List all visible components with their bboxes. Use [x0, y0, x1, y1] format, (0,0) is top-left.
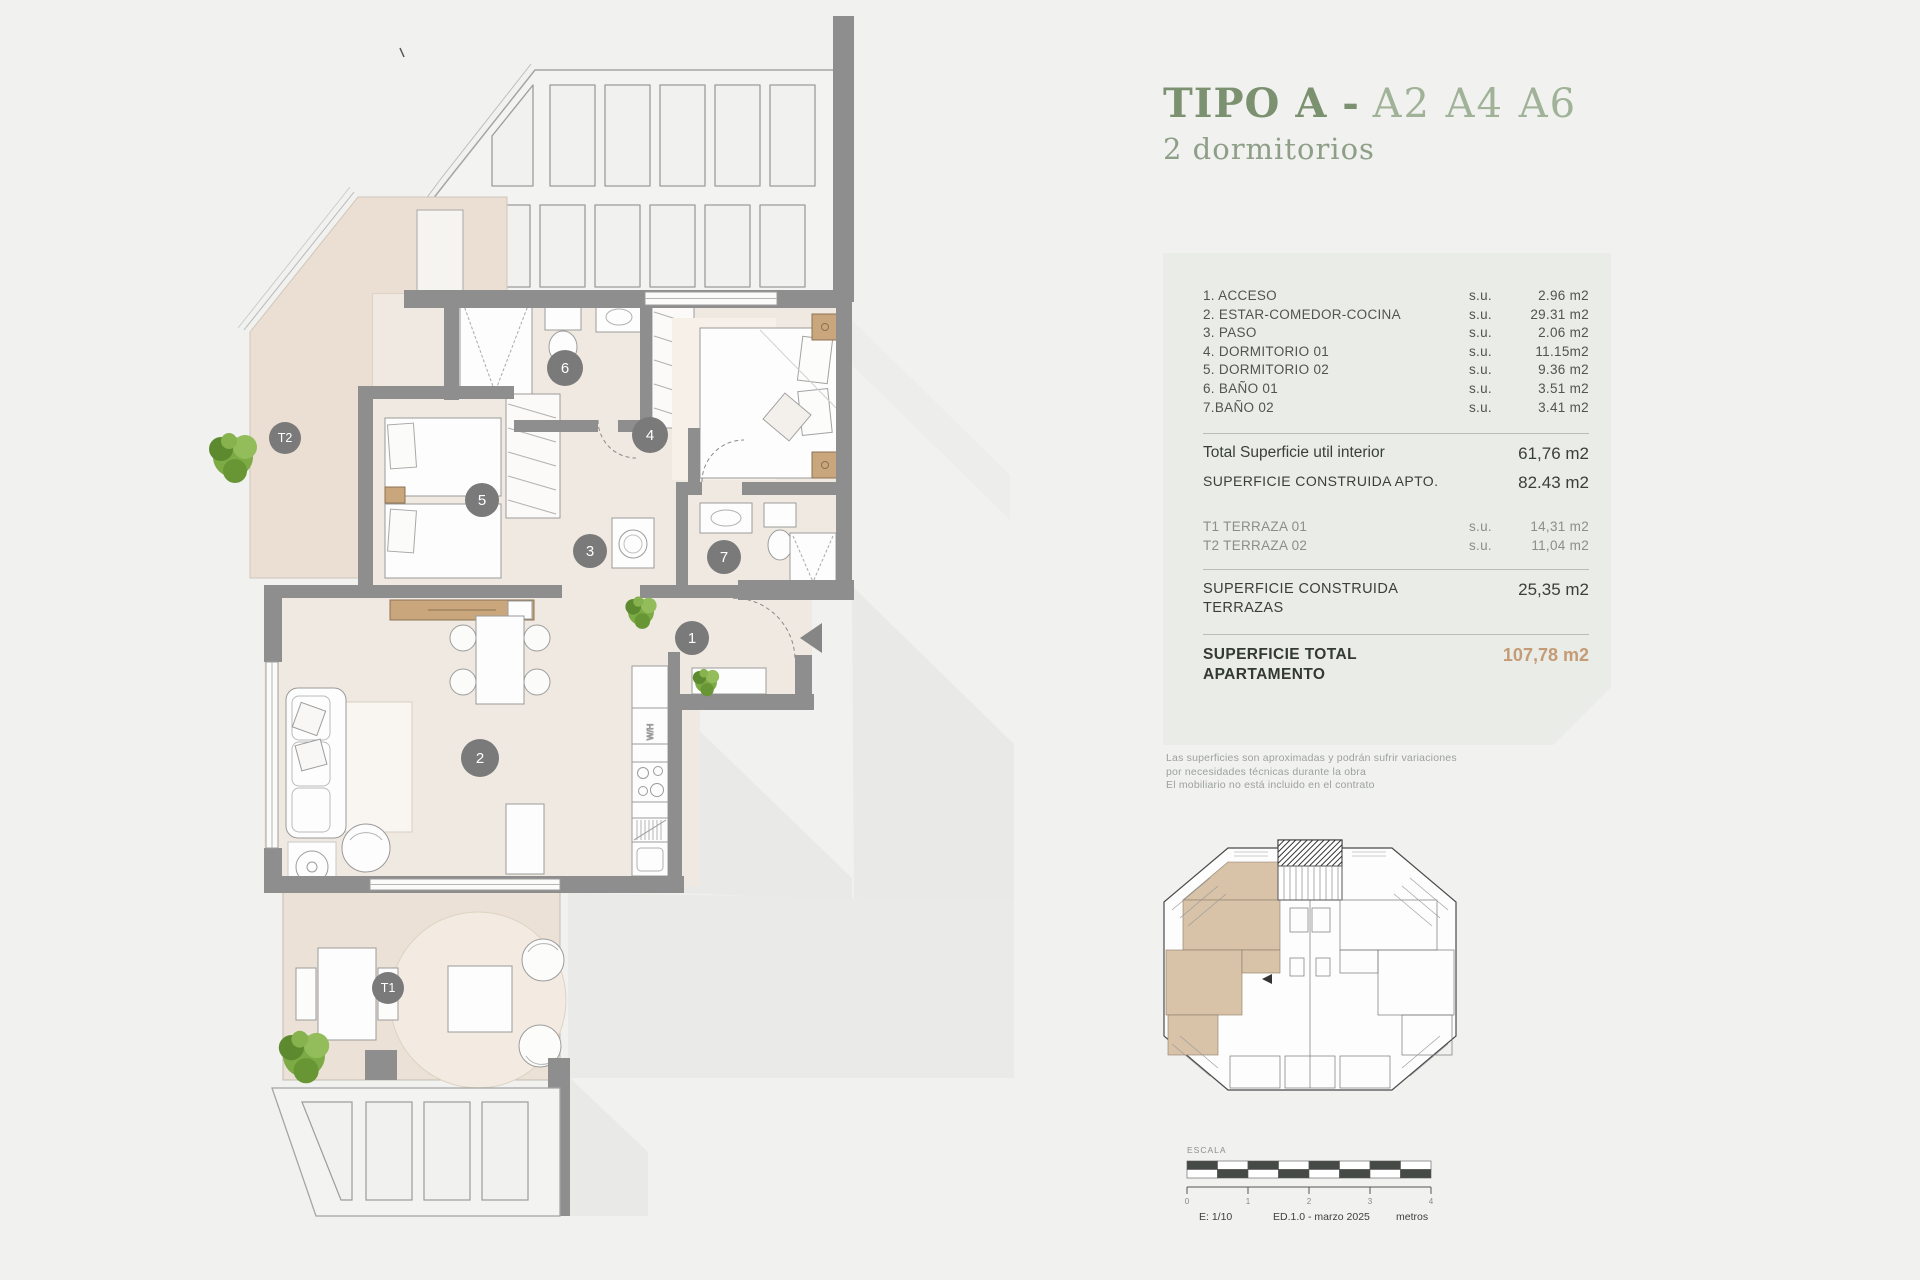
- svg-text:4: 4: [1429, 1197, 1434, 1206]
- svg-text:T2: T2: [278, 431, 293, 445]
- coffee-table: [448, 966, 512, 1032]
- kitchen-appliance-label: W/H: [645, 724, 655, 741]
- terrace-row: T1 TERRAZA 01s.u.14,31 m2: [1203, 517, 1589, 536]
- svg-text:T1: T1: [381, 981, 396, 995]
- svg-text:7: 7: [720, 549, 728, 566]
- room-list: 1. ACCESOs.u.2.96 m2 2. ESTAR-COMEDOR-CO…: [1203, 287, 1589, 417]
- scale-title: ESCALA: [1187, 1145, 1227, 1155]
- title-type: TIPO A -: [1163, 80, 1360, 127]
- page-title: TIPO A - A2 A4 A6: [1163, 82, 1683, 126]
- scale-edition: ED.1.0 - marzo 2025: [1273, 1211, 1370, 1223]
- room-marker-5: 5: [465, 483, 499, 517]
- construida-terrazas-row: SUPERFICIE CONSTRUIDA TERRAZAS 25,35 m2: [1203, 580, 1589, 618]
- room-marker-1: 1: [675, 621, 709, 655]
- svg-text:0: 0: [1185, 1197, 1190, 1206]
- lounge-chair: [522, 939, 564, 981]
- elevator-core: [1278, 840, 1342, 866]
- nightstand: [812, 452, 838, 478]
- room-marker-2: 2: [461, 739, 499, 777]
- svg-text:2: 2: [1307, 1197, 1312, 1206]
- total-apartamento-row: SUPERFICIE TOTAL APARTAMENTO 107,78 m2: [1203, 645, 1589, 685]
- total-value: 107,78 m2: [1479, 645, 1589, 666]
- surface-panel: 1. ACCESOs.u.2.96 m2 2. ESTAR-COMEDOR-CO…: [1163, 253, 1611, 745]
- room-row: 4. DORMITORIO 01s.u.11.15m2: [1203, 343, 1589, 362]
- room-marker-6: 6: [547, 350, 583, 386]
- title-units: A2 A4 A6: [1373, 81, 1577, 127]
- scale-units: metros: [1396, 1211, 1428, 1223]
- nightstand: [812, 314, 838, 340]
- armchair: [342, 824, 390, 872]
- svg-text:5: 5: [478, 492, 486, 509]
- construida-apto-row: SUPERFICIE CONSTRUIDA APTO. 82.43 m2: [1203, 473, 1589, 493]
- terrace-list: T1 TERRAZA 01s.u.14,31 m2 T2 TERRAZA 02s…: [1203, 517, 1589, 555]
- scale-ratio: E: 1/10: [1199, 1211, 1232, 1223]
- svg-text:3: 3: [1368, 1197, 1373, 1206]
- room-row: 2. ESTAR-COMEDOR-COCINAs.u.29.31 m2: [1203, 306, 1589, 325]
- title-block: TIPO A - A2 A4 A6 2 dormitorios: [1163, 82, 1683, 166]
- room-marker-t1: T1: [372, 972, 404, 1004]
- tick-mark: [400, 48, 404, 57]
- kitchen: W/H: [632, 666, 668, 876]
- floor-plan: W/H: [0, 0, 1100, 1280]
- key-plan: [1150, 838, 1480, 1118]
- page-subtitle: 2 dormitorios: [1163, 132, 1683, 166]
- room-marker-4: 4: [632, 417, 668, 453]
- nightstand: [385, 487, 405, 503]
- disclaimer: Las superficies son aproximadas y podrán…: [1166, 752, 1457, 793]
- divider: [1203, 569, 1589, 570]
- room-row: 1. ACCESOs.u.2.96 m2: [1203, 287, 1589, 306]
- room-marker-3: 3: [573, 534, 607, 568]
- svg-text:3: 3: [586, 543, 594, 560]
- room-row: 5. DORMITORIO 02s.u.9.36 m2: [1203, 361, 1589, 380]
- room-marker-7: 7: [707, 540, 741, 574]
- room-marker-t2: T2: [269, 422, 301, 454]
- outdoor-table: [318, 948, 376, 1040]
- room-row: 3. PASOs.u.2.06 m2: [1203, 324, 1589, 343]
- terrace-row: T2 TERRAZA 02s.u.11,04 m2: [1203, 536, 1589, 555]
- room-row: 7.BAÑO 02s.u.3.41 m2: [1203, 399, 1589, 418]
- svg-text:6: 6: [561, 360, 569, 377]
- scale-bar: ESCALA 0 1 2 3 4 E: 1/10 ED.1.0 - marzo …: [1185, 1142, 1455, 1226]
- total-interior-row: Total Superficie util interior 61,76 m2: [1203, 444, 1589, 464]
- divider: [1203, 433, 1589, 434]
- floorplan-sheet: W/H: [0, 0, 1920, 1280]
- hallway: [612, 518, 654, 568]
- svg-text:4: 4: [646, 427, 654, 444]
- dining-table: [476, 616, 524, 704]
- stairs: [1278, 866, 1342, 900]
- svg-text:1: 1: [1246, 1197, 1251, 1206]
- divider: [1203, 634, 1589, 635]
- wardrobe: [506, 394, 560, 518]
- pergola-bottom: [272, 1088, 560, 1216]
- console: [506, 804, 544, 874]
- svg-text:2: 2: [476, 750, 484, 767]
- room-row: 6. BAÑO 01s.u.3.51 m2: [1203, 380, 1589, 399]
- svg-text:1: 1: [688, 630, 696, 647]
